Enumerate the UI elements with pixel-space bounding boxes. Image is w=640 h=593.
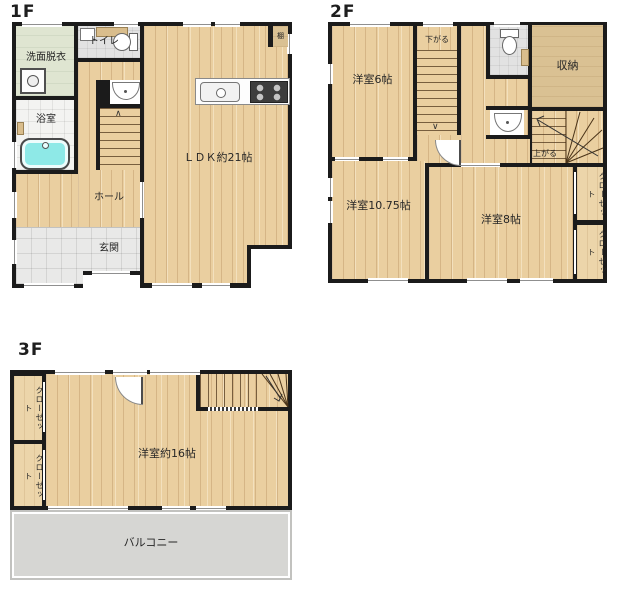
room-label-1075jo: 洋室10.75帖 [332,200,425,213]
closet-door-line [574,230,576,274]
footprint-notch [251,249,292,288]
door-opening [335,157,359,161]
wall [528,25,532,139]
floor-label-1f: 1F [10,2,35,22]
window [423,22,453,27]
floor-label-2f: 2F [330,2,355,22]
wall [457,50,461,135]
kitchen-counter [195,78,290,105]
window [55,370,105,375]
window [22,22,62,27]
window [12,142,17,168]
wall [96,104,140,108]
room-label-closet-2f-2: クローゼット [586,228,608,276]
wall [577,220,603,225]
door-panel [459,140,461,165]
window [152,283,192,288]
room-label-washroom: 洗面脱衣 [18,52,74,64]
balcony-window [48,506,128,510]
door-panel [141,377,143,404]
room-label-shelf: 棚 [273,32,288,40]
room-label-6jo: 洋室6帖 [332,74,413,87]
kitchen-sink-icon [200,82,240,102]
window [202,283,230,288]
room-label-hall: ホール [78,192,140,204]
wall [528,107,603,111]
door-opening [461,163,500,167]
floor-plan-1f: ∧ 棚 [12,22,292,288]
wall [14,440,42,444]
floor-label-3f: 3F [18,340,43,360]
room-label-closet-2f-1: クローゼット [586,170,608,218]
floor-plan-2f: ∨ [328,22,607,283]
window [12,192,17,218]
room-label-toilet-1f: トイレ [82,36,126,48]
window [12,240,17,264]
entrance-door [92,271,130,275]
window [368,278,408,283]
room-label-entrance: 玄関 [78,243,140,255]
stair-fan-icon [200,374,288,407]
wall [486,25,490,79]
room-label-ldk: ＬＤＫ約21帖 [158,152,278,165]
wall [486,135,532,139]
stair-arrow-icon: ∧ [115,110,122,119]
room-label-balcony: バルコニー [10,537,292,550]
room-label-closet-3f-2: クローゼット [23,450,45,502]
window [520,278,553,283]
room-hall-b [16,174,78,228]
window [24,283,74,288]
toilet-icon [502,36,517,55]
balcony-window [162,506,190,510]
stove-icon [250,81,288,103]
closet-door-line [574,172,576,214]
stair-arrow-icon: ∨ [432,123,439,132]
window [328,178,333,197]
floorplan-page: 1F ∧ [0,0,640,593]
wall [532,163,603,167]
shower-faucet-icon [17,122,24,135]
room-1075jo [332,161,425,279]
wall [96,108,100,170]
room-label-closet-3f-1: クローゼット [23,382,45,434]
wall [196,374,200,407]
window [494,22,520,27]
stairs-3f [200,374,288,407]
balcony-window [196,506,226,510]
room-label-8jo: 洋室8帖 [429,214,573,227]
window [350,22,390,27]
washing-machine-icon [20,68,46,94]
stair-label-up: 上がる [527,149,563,158]
wall [486,75,528,79]
stair-label-down: 下がる [417,35,457,44]
room-label-16jo: 洋室約16帖 [46,448,288,461]
room-ldk-main [144,26,288,245]
floor-plan-3f: 洋室約16帖 バルコニー クローゼット クローゼット [10,370,292,580]
sliding-door-opening [140,182,144,218]
room-label-bathroom: 浴室 [24,114,68,126]
entrance-recess [83,275,140,288]
window [467,278,507,283]
window [183,22,211,27]
room-6jo [332,26,413,157]
door-opening [383,157,408,161]
entrance-step-line [16,227,140,228]
window [150,370,200,375]
bathtub-icon [20,138,70,170]
room-ldk-lower [144,245,247,283]
window [215,22,240,27]
stair-rail-hatch [208,407,258,411]
room-label-storage: 収納 [532,60,603,73]
toilet-cabinet [521,49,529,66]
door-opening [113,370,147,375]
